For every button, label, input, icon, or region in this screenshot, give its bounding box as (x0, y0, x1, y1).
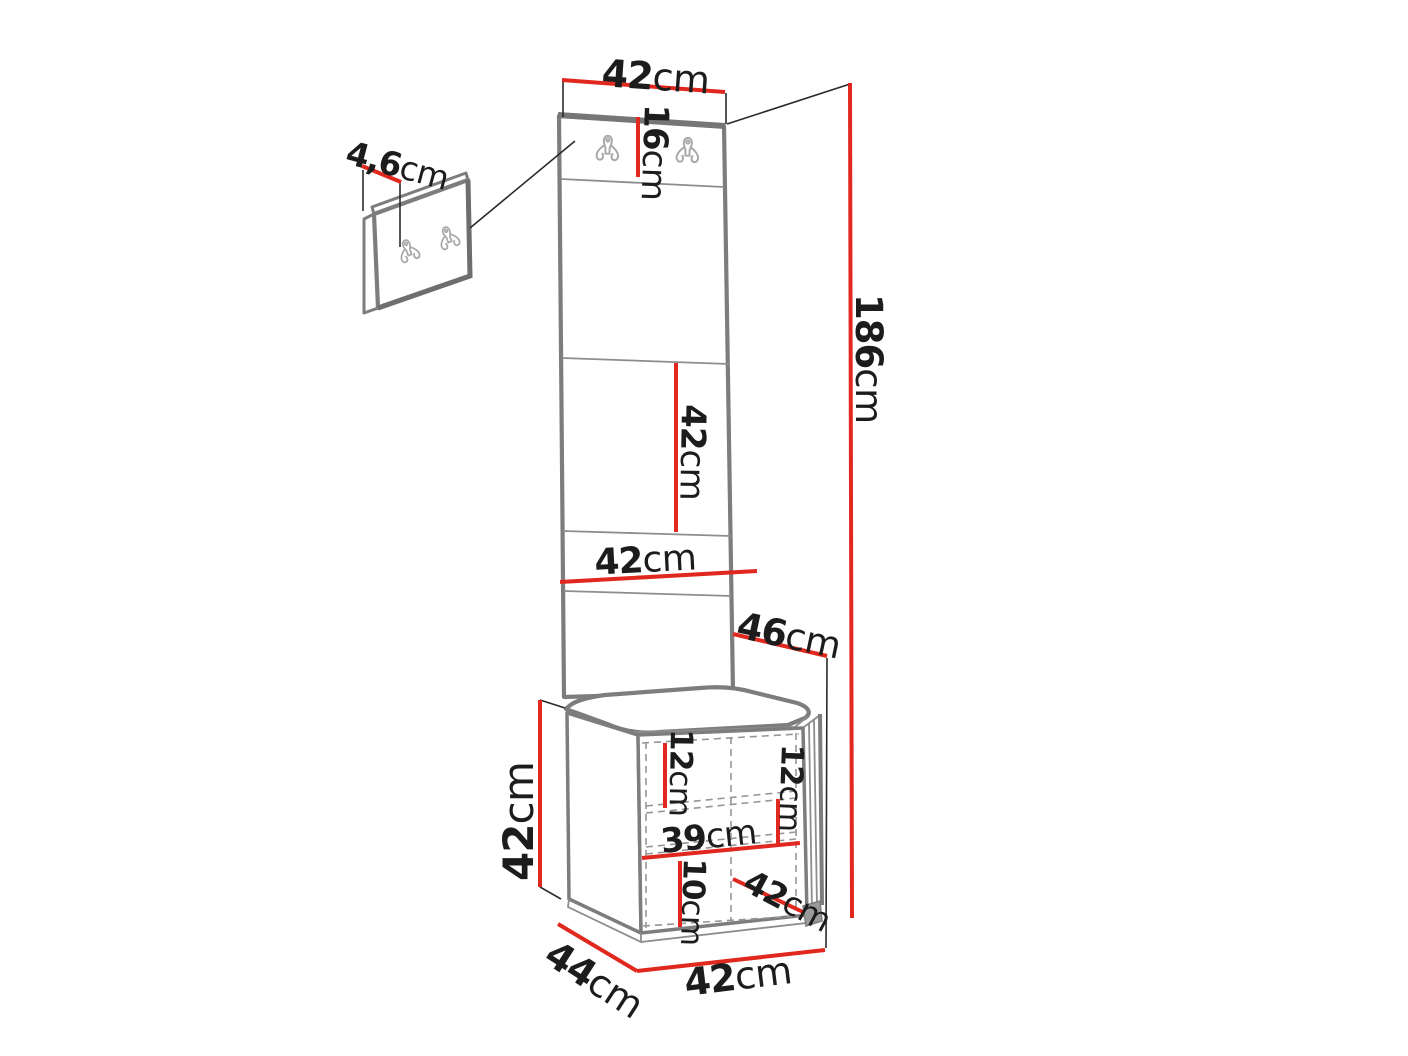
label-total-height: 186cm (847, 294, 890, 424)
label-bench-height: 42cm (494, 762, 543, 881)
dim-line-total-height (850, 83, 852, 918)
label-hook-offset: 4,6cm (342, 133, 453, 198)
label-panel-width: 42cm (593, 537, 697, 583)
cabinet-right-edge (820, 714, 822, 905)
label-bench-width: 42cm (682, 948, 794, 1005)
label-seat-depth: 46cm (733, 604, 845, 668)
label-hook-panel-height: 16cm (633, 104, 676, 201)
cabinet-left-side (567, 713, 641, 933)
label-inner-top-height: 12cm (661, 729, 699, 817)
furniture-dimension-diagram: 42cm 16cm 4,6cm 186cm 42cm 42cm 46cm 42c… (0, 0, 1408, 1056)
label-inner-bottom-height: 10cm (673, 858, 712, 947)
leader-to-height-line (727, 84, 850, 124)
label-middle-panel-height: 42cm (671, 404, 713, 501)
label-top-width: 42cm (600, 51, 711, 102)
label-inner-right-height: 12cm (771, 744, 810, 833)
diagram-canvas: 42cm 16cm 4,6cm 186cm 42cm 42cm 46cm 42c… (0, 0, 1408, 1056)
